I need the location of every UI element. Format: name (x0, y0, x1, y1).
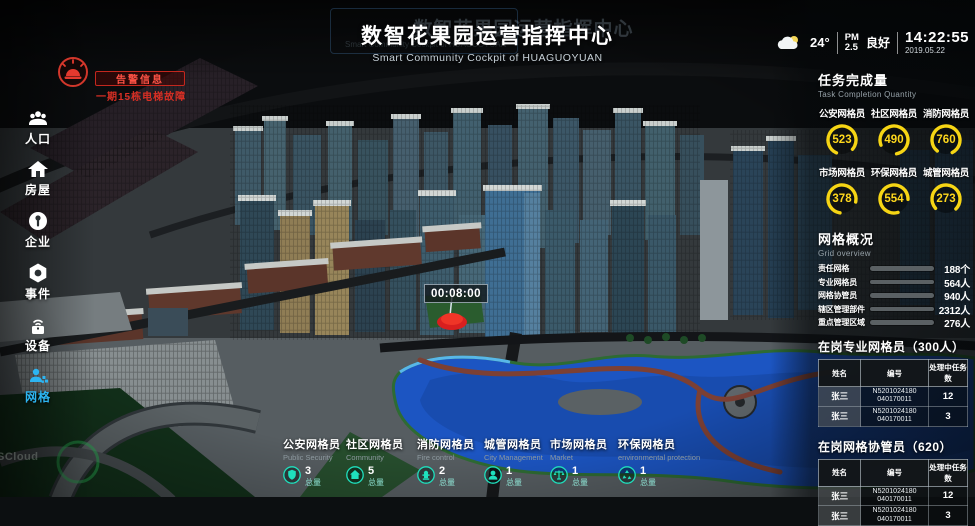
watermark: SCloud (0, 451, 39, 463)
people-icon (27, 110, 49, 128)
stat-market[interactable]: 市场网格员 Market 1 总量 (550, 436, 613, 487)
table-row: 张三 N5201024180040170011 12 (819, 486, 968, 506)
sidebar-item-devices[interactable]: 设备 (16, 315, 60, 354)
sidebar-item-population[interactable]: 人口 (16, 110, 60, 147)
table-row: 张三 N5201024180040170011 12 (819, 387, 968, 407)
stat-fire-control[interactable]: 消防网格员 Fire control 2 总量 (417, 436, 479, 487)
stat-community[interactable]: 社区网格员 Community 5 总量 (346, 436, 412, 487)
sidebar-item-label: 企业 (25, 233, 51, 250)
enterprise-icon (28, 211, 48, 231)
right-panel: 任务完成量 Task Completion Quantity 公安网格员 523… (818, 70, 970, 526)
overview-row: 网格协管员 940人 (818, 291, 970, 300)
alarm-title-badge[interactable]: 告警信息 (95, 71, 185, 86)
bottom-stats-bar: 公安网格员 Public Security 3 总量 社区网格员 Communi… (283, 436, 728, 487)
table-title: 在岗网格协管员（620） (818, 438, 970, 455)
gauge-ring: 523 (825, 123, 859, 157)
hexagon-event-icon (28, 263, 48, 283)
sidebar-item-events[interactable]: 事件 (16, 263, 60, 302)
gauge-ring: 554 (877, 182, 911, 216)
gauge-ring: 273 (929, 182, 963, 216)
divider (837, 32, 838, 54)
house-icon (27, 160, 49, 179)
sidebar-item-label: 设备 (25, 337, 51, 354)
col-header-name: 姓名 (819, 459, 861, 486)
progress-bar (870, 266, 934, 271)
time: 14:22:55 (905, 30, 969, 45)
sidebar-nav: 人口 房屋 企业 事件 (16, 110, 60, 405)
stat-public-security[interactable]: 公安网格员 Public Security 3 总量 (283, 436, 341, 487)
gauge-fire: 消防网格员 760 (922, 106, 970, 157)
professional-griders-table: 姓名 编号 处理中任务数 张三 N5201024180040170011 12 … (818, 359, 968, 427)
sidebar-item-label: 网格 (25, 388, 51, 405)
status-bar: 24° PM 2.5 良好 14:22:55 2019.05.22 (777, 30, 969, 55)
gauge-ring: 490 (877, 123, 911, 157)
weather-icon (777, 34, 803, 52)
gauge-grid: 公安网格员 523 社区网格员 490 消防网格员 760 (818, 106, 970, 216)
ghost-subtitle: Smart Community Cockpit of HUAGUOYUAN (345, 40, 506, 49)
gauge-community: 社区网格员 490 (870, 106, 918, 157)
sidebar-item-enterprise[interactable]: 企业 (16, 211, 60, 250)
grid-overview-rows: 责任网格 188个 专业网格员 564人 网格协管员 940人 辖区管理部件 2… (818, 264, 970, 327)
section-title: 任务完成量 (818, 70, 970, 89)
air-quality: 良好 (866, 34, 890, 51)
recycle-icon (618, 466, 636, 484)
section-subtitle: Grid overview (818, 249, 970, 258)
overview-row: 重点管理区域 276人 (818, 318, 970, 327)
gauge-environment: 环保网格员 554 (870, 165, 918, 216)
col-header-id: 编号 (861, 459, 929, 486)
sidebar-item-label: 事件 (25, 285, 51, 302)
stat-environment[interactable]: 环保网格员 environmental protection 1 总量 (618, 436, 728, 487)
col-header-id: 编号 (861, 360, 929, 387)
gauge-ring: 760 (929, 123, 963, 157)
sidebar-item-label: 房屋 (25, 181, 51, 198)
section-title: 网格概况 (818, 229, 970, 248)
date: 2019.05.22 (905, 47, 969, 55)
table-title: 在岗专业网格员（300人） (818, 338, 970, 355)
overview-row: 辖区管理部件 2312人 (818, 305, 970, 314)
progress-bar (870, 307, 934, 312)
sidebar-item-grid[interactable]: 网格 (16, 367, 60, 405)
home-icon (346, 466, 364, 484)
professional-griders-section: 在岗专业网格员（300人） 姓名 编号 处理中任务数 张三 N520102418… (818, 338, 970, 427)
stat-city-management[interactable]: 城管网格员 City Management 1 总量 (484, 436, 545, 487)
progress-bar (870, 280, 934, 285)
overview-row: 责任网格 188个 (818, 264, 970, 273)
sidebar-item-housing[interactable]: 房屋 (16, 160, 60, 198)
person-icon (484, 466, 502, 484)
gauge-city-management: 城管网格员 273 (922, 165, 970, 216)
task-completion-section: 任务完成量 Task Completion Quantity 公安网格员 523… (818, 70, 970, 216)
grid-overview-section: 网格概况 Grid overview 责任网格 188个 专业网格员 564人 … (818, 229, 970, 327)
gauge-market: 市场网格员 378 (818, 165, 866, 216)
divider (897, 32, 898, 54)
fire-hydrant-icon (417, 466, 435, 484)
map-time-marker: 00:08:00 (424, 284, 488, 303)
clock: 14:22:55 2019.05.22 (905, 30, 969, 55)
grid-person-icon (27, 367, 49, 386)
alarm-title: 告警信息 (116, 71, 164, 86)
col-header-tasks: 处理中任务数 (928, 459, 967, 486)
table-row: 张三 N5201024180040170011 3 (819, 406, 968, 426)
shield-icon (283, 466, 301, 484)
alarm-bell-icon[interactable] (56, 55, 90, 89)
scales-icon (550, 466, 568, 484)
pm-label: PM 2.5 (845, 33, 859, 52)
progress-bar (870, 293, 934, 298)
section-subtitle: Task Completion Quantity (818, 90, 970, 99)
progress-bar (870, 320, 934, 325)
overview-row: 专业网格员 564人 (818, 278, 970, 287)
table-row: 张三 N5201024180040170011 3 (819, 506, 968, 526)
gauge-ring: 378 (825, 182, 859, 216)
gauge-public-security: 公安网格员 523 (818, 106, 866, 157)
assistant-griders-table: 姓名 编号 处理中任务数 张三 N5201024180040170011 12 … (818, 459, 968, 526)
assistant-griders-section: 在岗网格协管员（620） 姓名 编号 处理中任务数 张三 N5201024180… (818, 438, 970, 526)
alarm-message[interactable]: 一期15栋电梯故障 (96, 88, 186, 103)
sidebar-item-label: 人口 (25, 130, 51, 147)
temperature: 24° (810, 35, 830, 50)
device-antenna-icon (27, 315, 49, 335)
col-header-name: 姓名 (819, 360, 861, 387)
col-header-tasks: 处理中任务数 (928, 360, 967, 387)
